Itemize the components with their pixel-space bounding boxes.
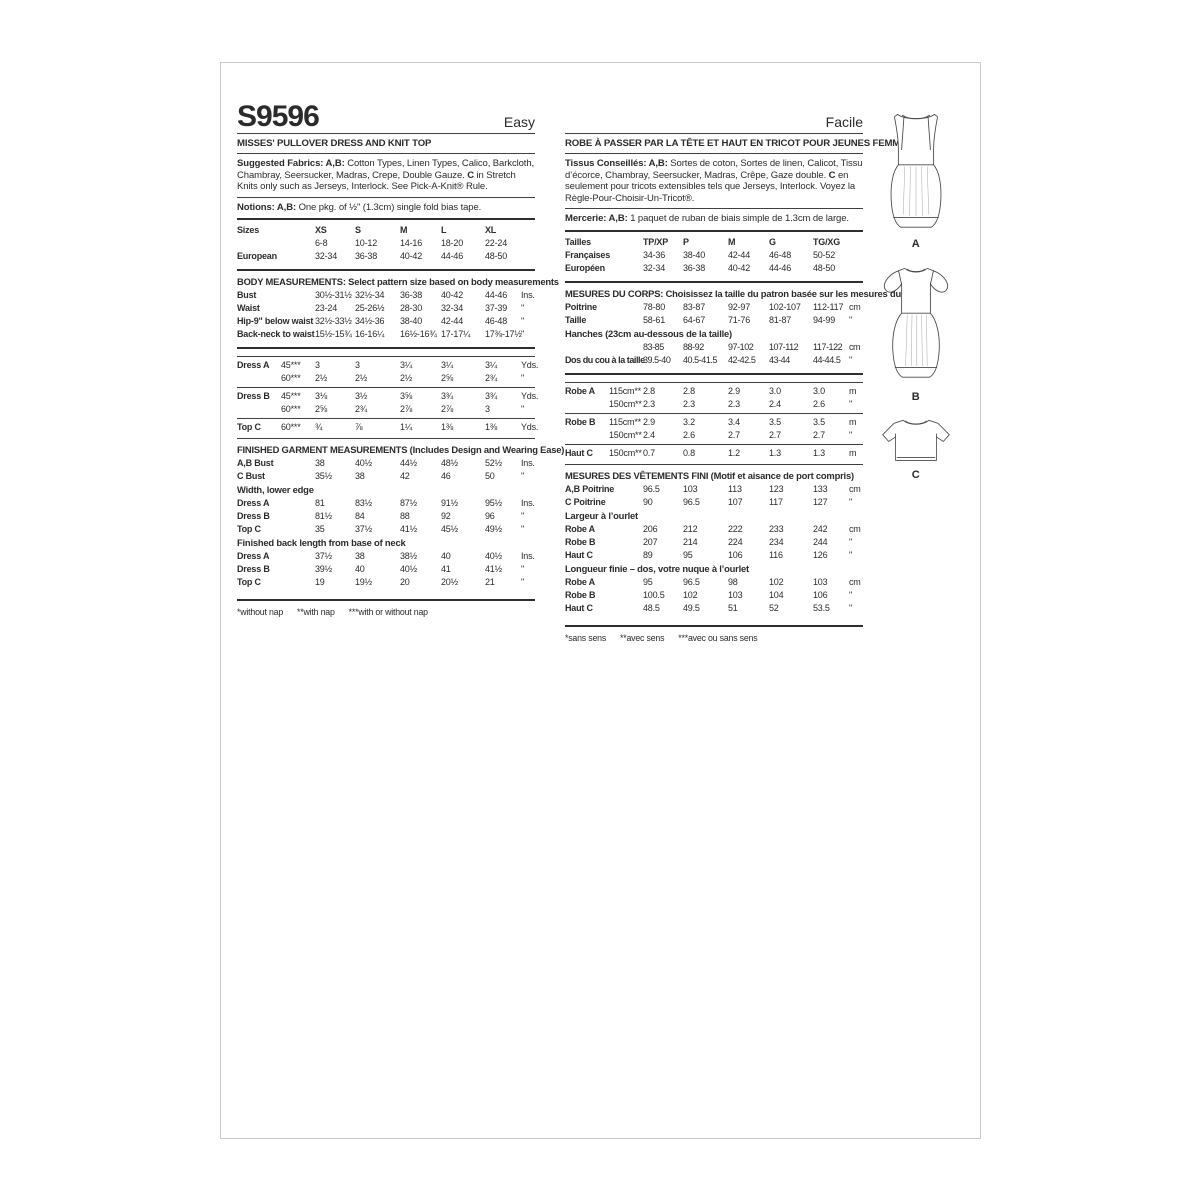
yardage-haut-c-fr: Haut C150cm**0.70.81.21.31.3m <box>565 444 863 462</box>
table-row: Dress A8183½87½91½95½Ins. <box>237 497 535 510</box>
divider-thick <box>565 625 863 627</box>
cell: Robe B <box>565 536 643 549</box>
cell: Waist <box>237 302 315 315</box>
table-row: Robe A206212222233242cm <box>565 523 863 536</box>
cell: 2⅞ <box>441 403 485 416</box>
cell: Yds. <box>521 359 538 372</box>
cell: 45*** <box>281 390 315 403</box>
cell: 3¼ <box>441 359 485 372</box>
cell: 32-34 <box>643 262 683 275</box>
cell: 3 <box>485 403 521 416</box>
cell: 48.5 <box>643 602 683 615</box>
view-label: B <box>865 391 967 403</box>
cell: 3¼ <box>485 359 521 372</box>
cell: 6-8 <box>315 237 355 250</box>
cell: 48½ <box>441 457 485 470</box>
cell: 15½-15¾ <box>315 328 355 341</box>
cell: 2.7 <box>769 429 813 442</box>
notions-lead: Notions: A,B: <box>237 202 296 213</box>
table-row: 60***2½2½2½2⅝2¾" <box>237 372 535 385</box>
footnote: *without nap <box>237 607 283 617</box>
cell: Dress A <box>237 359 281 372</box>
cell: 97-102 <box>728 341 769 354</box>
cell: 102-107 <box>769 301 813 314</box>
cell: 2⅝ <box>315 403 355 416</box>
cell: Ins. <box>521 550 535 563</box>
table-row: European32-3436-3840-4244-4648-50 <box>237 250 535 263</box>
cell: 46-48 <box>485 315 521 328</box>
cell: m <box>849 416 863 429</box>
cell: cm <box>849 523 863 536</box>
cell: 150cm** <box>609 398 643 411</box>
yardage-robe-b-fr: Robe B115cm**2.93.23.43.53.5m 150cm**2.4… <box>565 413 863 444</box>
cell: 95½ <box>485 497 521 510</box>
cell: 19½ <box>355 576 400 589</box>
cell: 98 <box>728 576 769 589</box>
cell: 113 <box>728 483 769 496</box>
notions-tail: One pkg. of ½" (1.3cm) single fold bias … <box>296 202 481 213</box>
cell: 2.3 <box>683 398 728 411</box>
cell: 38 <box>355 550 400 563</box>
title-fr: ROBE À PASSER PAR LA TÊTE ET HAUT EN TRI… <box>565 136 863 150</box>
dress-a-line-drawing <box>876 107 956 237</box>
cell: Ins. <box>521 457 535 470</box>
cell: 2¾ <box>485 372 521 385</box>
cell: XS <box>315 224 355 237</box>
cell: Dress B <box>237 510 315 523</box>
cell: 2.9 <box>728 385 769 398</box>
cell: 48-50 <box>485 250 521 263</box>
cell: 2.3 <box>728 398 769 411</box>
footnotes-fr: *sans sens **avec sens ***avec ou sans s… <box>565 630 863 643</box>
longueur-header-fr: Longueur finie – dos, votre nuque à l’ou… <box>565 562 863 576</box>
yardage-robe-a-fr: Robe A115cm**2.82.82.93.03.0m 150cm**2.3… <box>565 382 863 413</box>
body-measurements-header-fr: MESURES DU CORPS: Choisissez la taille d… <box>565 287 863 301</box>
cell: 40½ <box>355 457 400 470</box>
cell: 0.8 <box>683 447 728 460</box>
cell <box>565 398 609 411</box>
yardage-table-en: Dress A45***333¼3¼3¼Yds. 60***2½2½2½2⅝2¾… <box>237 355 535 438</box>
cell: 2.4 <box>769 398 813 411</box>
cell: 36-38 <box>355 250 400 263</box>
cell: 112-117 <box>813 301 849 314</box>
cell: 38½ <box>400 550 441 563</box>
cell: 16½-16¾ <box>400 328 441 341</box>
cell: 37-39 <box>485 302 521 315</box>
cell <box>521 237 535 250</box>
cell: 3 <box>315 359 355 372</box>
notions-tail: 1 paquet de ruban de biais simple de 1.3… <box>628 213 849 224</box>
cell: 123 <box>769 483 813 496</box>
suggested-fabrics-en: Suggested Fabrics: A,B: Cotton Types, Li… <box>237 156 535 194</box>
cell: cm <box>849 483 863 496</box>
divider <box>237 197 535 198</box>
pattern-number: S9596 <box>237 104 319 130</box>
table-row: Robe A115cm**2.82.82.93.03.0m <box>565 385 863 398</box>
cell: 23-24 <box>315 302 355 315</box>
table-row: Haut C150cm**0.70.81.21.31.3m <box>565 447 863 460</box>
cell: m <box>849 385 863 398</box>
cell: 17-17¼ <box>441 328 485 341</box>
cell: " <box>849 429 863 442</box>
table-row: Dress B81½84889296" <box>237 510 535 523</box>
cell: 150cm** <box>609 447 643 460</box>
cell: 2.3 <box>643 398 683 411</box>
cell: Ins. <box>521 497 535 510</box>
cell: M <box>728 236 769 249</box>
table-row: C Poitrine9096.5107117127" <box>565 496 863 509</box>
cell <box>565 429 609 442</box>
cell: Poitrine <box>565 301 643 314</box>
cell: 0.7 <box>643 447 683 460</box>
divider <box>565 208 863 209</box>
cell: 44-46 <box>769 262 813 275</box>
cell: Ins. <box>521 289 535 302</box>
cell: 32-34 <box>315 250 355 263</box>
cell: 1.3 <box>813 447 849 460</box>
cell: Tailles <box>565 236 643 249</box>
garment-view-b: B <box>865 262 967 403</box>
cell: 38-40 <box>683 249 728 262</box>
cell <box>565 341 643 354</box>
fabrics-lead: Tissus Conseillés: A,B: <box>565 158 668 169</box>
cell: 34½-36 <box>355 315 400 328</box>
cell: 1.2 <box>728 447 769 460</box>
cell <box>849 249 863 262</box>
table-row: Françaises34-3638-4042-4446-4850-52 <box>565 249 863 262</box>
cell: " <box>849 536 863 549</box>
cell: " <box>521 403 535 416</box>
cell: 3.5 <box>769 416 813 429</box>
view-label: C <box>865 469 967 481</box>
cell: 2.7 <box>813 429 849 442</box>
cell: 102 <box>683 589 728 602</box>
cell: 233 <box>769 523 813 536</box>
cell <box>237 237 315 250</box>
cell: 34-36 <box>643 249 683 262</box>
cell: 46 <box>441 470 485 483</box>
cell: 2.8 <box>683 385 728 398</box>
cell: " <box>849 496 863 509</box>
cell <box>237 372 281 385</box>
table-row: Dress B45***3⅛3½3⅝3¾3¾Yds. <box>237 390 535 403</box>
cell: " <box>849 398 863 411</box>
cell: 1¼ <box>400 421 441 434</box>
cell: 52 <box>769 602 813 615</box>
cell: 50-52 <box>813 249 849 262</box>
divider-thick <box>237 438 535 439</box>
difficulty-fr: Facile <box>826 114 863 130</box>
table-row: 150cm**2.42.62.72.72.7" <box>565 429 863 442</box>
cell: 106 <box>728 549 769 562</box>
cell: 107 <box>728 496 769 509</box>
cell: 103 <box>728 589 769 602</box>
yardage-top-c-en: Top C60***¾⅞1¼1⅜1⅜Yds. <box>237 418 535 436</box>
top-c-line-drawing <box>878 415 954 468</box>
cell: A,B Poitrine <box>565 483 643 496</box>
cell: 49.5 <box>683 602 728 615</box>
cell: 42-42.5 <box>728 354 769 367</box>
cell: 35½ <box>315 470 355 483</box>
hanches-header-fr: Hanches (23cm au-dessous de la taille) <box>565 327 863 341</box>
cell: Robe B <box>565 416 609 429</box>
cell: 214 <box>683 536 728 549</box>
divider <box>237 153 535 154</box>
cell: 78-80 <box>643 301 683 314</box>
cell: 242 <box>813 523 849 536</box>
cell: Dos du cou à la taille <box>565 354 643 367</box>
cell: 2½ <box>315 372 355 385</box>
cell: 40.5-41.5 <box>683 354 728 367</box>
cell: Taille <box>565 314 643 327</box>
footnote: **avec sens <box>620 633 664 643</box>
cell <box>237 403 281 416</box>
cell: A,B Bust <box>237 457 315 470</box>
cell: 19 <box>315 576 355 589</box>
table-row: Robe B207214224234244" <box>565 536 863 549</box>
table-row: Dress A45***333¼3¼3¼Yds. <box>237 359 535 372</box>
cell: 3.0 <box>813 385 849 398</box>
garment-view-c: C <box>865 415 967 481</box>
pattern-envelope-back: S9596 Easy MISSES' PULLOVER DRESS AND KN… <box>220 62 981 1139</box>
body-measurements-header-en: BODY MEASUREMENTS: Select pattern size b… <box>237 275 535 289</box>
header-row-fr: Facile <box>565 103 863 130</box>
cell: 41½ <box>400 523 441 536</box>
cell: 32-34 <box>441 302 485 315</box>
cell: 3.5 <box>813 416 849 429</box>
cell: 2.7 <box>728 429 769 442</box>
finished-measurements-en: FINISHED GARMENT MEASUREMENTS (Includes … <box>237 442 535 591</box>
cell: 40-42 <box>728 262 769 275</box>
cell: 88 <box>400 510 441 523</box>
cell: cm <box>849 341 863 354</box>
cell: 40-42 <box>400 250 441 263</box>
table-row: 60***2⅝2¾2⅞2⅞3" <box>237 403 535 416</box>
notions-lead: Mercerie: A,B: <box>565 213 628 224</box>
cell: 60*** <box>281 421 315 434</box>
cell: 102 <box>769 576 813 589</box>
cell: 150cm** <box>609 429 643 442</box>
sizes-table-fr: Tailles TP/XP P M G TG/XG Françaises34-3… <box>565 235 863 277</box>
cell: 41½ <box>485 563 521 576</box>
cell: Robe A <box>565 385 609 398</box>
cell: 81½ <box>315 510 355 523</box>
cell: 25-26½ <box>355 302 400 315</box>
sizes-head-row: Tailles TP/XP P M G TG/XG <box>565 236 863 249</box>
table-row: Hip-9" below waist32½-33½34½-3638-4042-4… <box>237 315 535 328</box>
cell: Top C <box>237 576 315 589</box>
table-row: Dos du cou à la taille39.5-4040.5-41.542… <box>565 354 863 367</box>
cell: Robe A <box>565 523 643 536</box>
cell: 52½ <box>485 457 521 470</box>
dress-b-line-drawing <box>872 262 960 390</box>
divider <box>565 153 863 154</box>
cell: Haut C <box>565 549 643 562</box>
cell: 22-24 <box>485 237 521 250</box>
cell: 107-112 <box>769 341 813 354</box>
cell: Sizes <box>237 224 315 237</box>
cell: 133 <box>813 483 849 496</box>
cell: " <box>849 602 863 615</box>
cell: 3¾ <box>441 390 485 403</box>
fabrics-lead: Suggested Fabrics: A,B: <box>237 158 345 169</box>
cell: 116 <box>769 549 813 562</box>
cell: 1⅜ <box>485 421 521 434</box>
cell: 83½ <box>355 497 400 510</box>
divider-thick <box>565 373 863 375</box>
sizes-head-row: Sizes XS S M L XL <box>237 224 535 237</box>
cell: 38-40 <box>400 315 441 328</box>
cell: 50 <box>485 470 521 483</box>
cell: 81 <box>315 497 355 510</box>
cell: 2.6 <box>683 429 728 442</box>
table-row: Haut C8995106116126" <box>565 549 863 562</box>
cell: 3¾ <box>485 390 521 403</box>
yardage-table-fr: Robe A115cm**2.82.82.93.03.0m 150cm**2.3… <box>565 381 863 464</box>
cell <box>849 262 863 275</box>
cell: TP/XP <box>643 236 683 249</box>
cell: XL <box>485 224 521 237</box>
cell: M <box>400 224 441 237</box>
cell: 20 <box>400 576 441 589</box>
garment-view-a: A <box>865 107 967 250</box>
cell: S <box>355 224 400 237</box>
suggested-fabrics-fr: Tissus Conseillés: A,B: Sortes de coton,… <box>565 156 863 205</box>
cell: Robe A <box>565 576 643 589</box>
cell: 244 <box>813 536 849 549</box>
footnote: ***avec ou sans sens <box>678 633 757 643</box>
finished-header-fr: MESURES DES VÊTEMENTS FINI (Motif et ais… <box>565 469 863 483</box>
cell: 30½-31½ <box>315 289 355 302</box>
cell: 44½ <box>400 457 441 470</box>
cell: 48-50 <box>813 262 849 275</box>
cell: 17⅜-17½ <box>485 328 521 341</box>
cell: 91½ <box>441 497 485 510</box>
table-row: Dress B39½4040½4141½" <box>237 563 535 576</box>
cell: 60*** <box>281 403 315 416</box>
cell: 39½ <box>315 563 355 576</box>
cell: 32½-34 <box>355 289 400 302</box>
cell: Top C <box>237 421 281 434</box>
cell: Bust <box>237 289 315 302</box>
cell: cm <box>849 576 863 589</box>
cell: 222 <box>728 523 769 536</box>
cell: 224 <box>728 536 769 549</box>
cell: 103 <box>683 483 728 496</box>
footnotes-en: *without nap **with nap ***with or witho… <box>237 604 535 617</box>
cell: 115cm** <box>609 416 643 429</box>
cell: 92-97 <box>728 301 769 314</box>
cell: " <box>521 576 535 589</box>
cell: 45*** <box>281 359 315 372</box>
cell: ¾ <box>315 421 355 434</box>
cell: 117-122 <box>813 341 849 354</box>
cell: 37½ <box>315 550 355 563</box>
table-row: Robe A9596.598102103cm <box>565 576 863 589</box>
cell: 3 <box>355 359 400 372</box>
cell: 2.6 <box>813 398 849 411</box>
cell: 83-85 <box>643 341 683 354</box>
cell: 40½ <box>400 563 441 576</box>
cell: 104 <box>769 589 813 602</box>
cell: 40-42 <box>441 289 485 302</box>
divider-thick <box>237 599 535 601</box>
cell: 90 <box>643 496 683 509</box>
cell: 40 <box>355 563 400 576</box>
cell: 103 <box>813 576 849 589</box>
cell: " <box>521 510 535 523</box>
cell: 2.8 <box>643 385 683 398</box>
cell: 36-38 <box>400 289 441 302</box>
back-length-header-en: Finished back length from base of neck <box>237 536 535 550</box>
table-row: Top C1919½2020½21" <box>237 576 535 589</box>
cell: 37½ <box>355 523 400 536</box>
cell: 46-48 <box>769 249 813 262</box>
cell: 71-76 <box>728 314 769 327</box>
cell: Robe B <box>565 589 643 602</box>
cell: 206 <box>643 523 683 536</box>
divider <box>237 133 535 134</box>
cell: Européen <box>565 262 643 275</box>
cell: Yds. <box>521 390 538 403</box>
cell: 115cm** <box>609 385 643 398</box>
cell: C Bust <box>237 470 315 483</box>
cell: 212 <box>683 523 728 536</box>
cell: 2.9 <box>643 416 683 429</box>
cell: 84 <box>355 510 400 523</box>
cell: 83-87 <box>683 301 728 314</box>
cell: 58-61 <box>643 314 683 327</box>
cell: 3.2 <box>683 416 728 429</box>
cell: 10-12 <box>355 237 400 250</box>
finished-header-en: FINISHED GARMENT MEASUREMENTS (Includes … <box>237 443 535 457</box>
table-row: Robe B100.5102103104106" <box>565 589 863 602</box>
divider-thick <box>237 347 535 349</box>
cell: 3.0 <box>769 385 813 398</box>
cell: 44-44.5 <box>813 354 849 367</box>
cell: 43-44 <box>769 354 813 367</box>
cell: 95 <box>643 576 683 589</box>
footnote: **with nap <box>297 607 335 617</box>
cell: Top C <box>237 523 315 536</box>
footnote: *sans sens <box>565 633 606 643</box>
cell: 42-44 <box>728 249 769 262</box>
cell: 96.5 <box>683 496 728 509</box>
cell: 18-20 <box>441 237 485 250</box>
cell: 2¾ <box>355 403 400 416</box>
french-column: Facile ROBE À PASSER PAR LA TÊTE ET HAUT… <box>565 103 863 643</box>
yardage-dress-b-en: Dress B45***3⅛3½3⅝3¾3¾Yds. 60***2⅝2¾2⅞2⅞… <box>237 387 535 418</box>
cell: 2½ <box>400 372 441 385</box>
cell: Dress B <box>237 563 315 576</box>
cell: 1.3 <box>769 447 813 460</box>
cell: 32½-33½ <box>315 315 355 328</box>
cell: 81-87 <box>769 314 813 327</box>
divider <box>565 133 863 134</box>
cell: ⅞ <box>355 421 400 434</box>
cell: 3⅛ <box>315 390 355 403</box>
cell: 20½ <box>441 576 485 589</box>
cell: 126 <box>813 549 849 562</box>
yardage-dress-a-en: Dress A45***333¼3¼3¼Yds. 60***2½2½2½2⅝2¾… <box>237 356 535 387</box>
table-row: 83-8588-9297-102107-112117-122cm <box>565 341 863 354</box>
cell: 96 <box>485 510 521 523</box>
cell: 38 <box>355 470 400 483</box>
table-row: A,B Poitrine96.5103113123133cm <box>565 483 863 496</box>
cell: 53.5 <box>813 602 849 615</box>
difficulty-en: Easy <box>504 114 535 130</box>
table-row: Robe B115cm**2.93.23.43.53.5m <box>565 416 863 429</box>
